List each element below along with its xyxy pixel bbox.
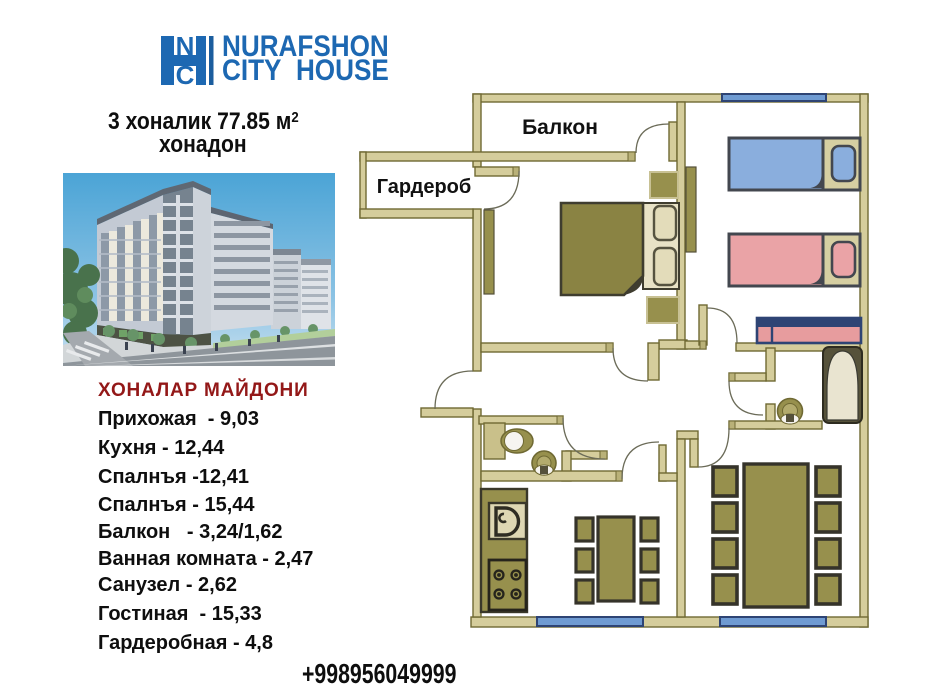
svg-text:Гардероб: Гардероб [377, 176, 472, 198]
svg-text:Балкон: Балкон [522, 116, 598, 139]
